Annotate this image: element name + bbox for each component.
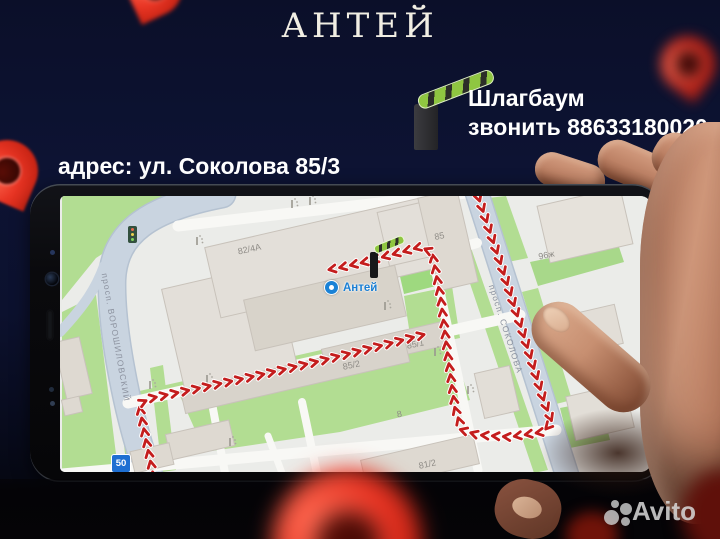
poi-icon xyxy=(324,280,339,295)
avito-watermark: Avito xyxy=(598,494,718,534)
avito-logo-dot xyxy=(620,503,632,515)
poi-badge-antey[interactable]: Антей xyxy=(324,280,377,295)
proximity-sensor xyxy=(50,250,55,255)
map-barrier-post-icon xyxy=(370,252,378,278)
hand-palm xyxy=(640,122,720,524)
barrier-post-icon xyxy=(414,104,438,150)
front-camera xyxy=(46,273,58,285)
address-line: адрес: ул. Соколова 85/3 xyxy=(58,153,340,180)
avito-logo-dot xyxy=(611,500,619,508)
earpiece-speaker xyxy=(47,310,53,340)
page-title: АНТЕЙ xyxy=(0,6,720,46)
traffic-light-icon xyxy=(128,226,137,243)
avito-logo-text: Avito xyxy=(632,496,696,527)
sensor-dot xyxy=(49,387,54,392)
sensor-dot xyxy=(50,401,55,406)
road-number-badge: 50 xyxy=(111,454,131,472)
advert-image: АНТЕЙ Шлагбаум звонить 88633180020 адрес… xyxy=(0,0,720,539)
svg-text:85: 85 xyxy=(433,230,445,242)
avito-logo-dot xyxy=(621,517,630,526)
avito-logo-dot xyxy=(604,510,619,525)
barrier-label: Шлагбаум xyxy=(468,84,720,113)
poi-label: Антей xyxy=(343,282,377,294)
